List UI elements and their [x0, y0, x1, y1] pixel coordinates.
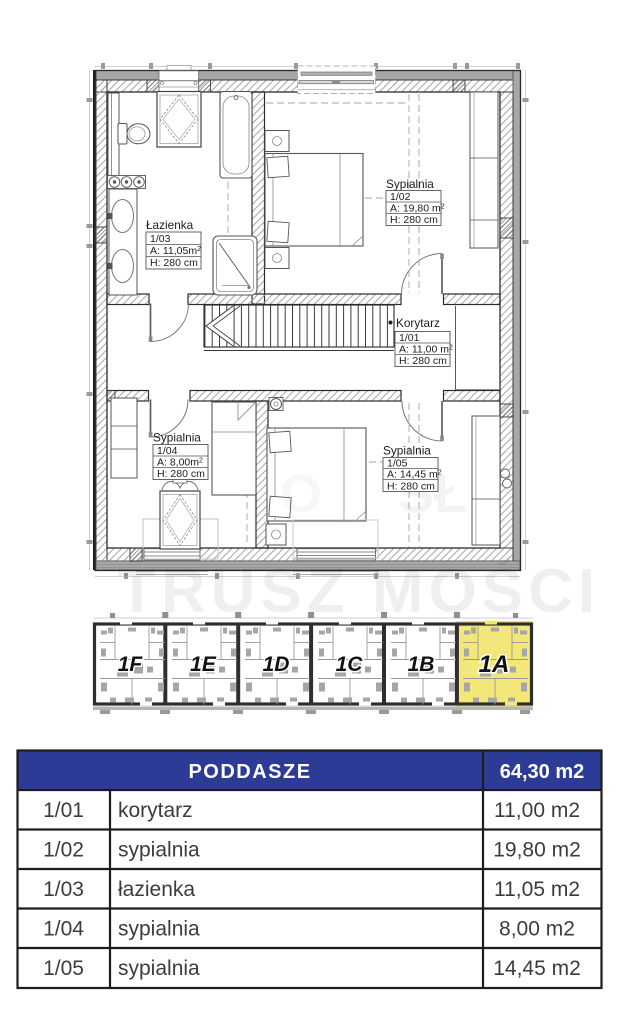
svg-text:sypialnia: sypialnia	[118, 839, 200, 862]
svg-text:Sypialnia: Sypialnia	[386, 177, 434, 191]
svg-text:H: 280 cm: H: 280 cm	[387, 481, 435, 493]
svg-text:Sypialnia: Sypialnia	[153, 431, 201, 445]
svg-text:1D: 1D	[263, 653, 290, 676]
svg-text:sypialnia: sypialnia	[118, 918, 200, 941]
svg-text:H: 280 cm: H: 280 cm	[157, 468, 205, 480]
svg-text:Łazienka: Łazienka	[146, 218, 194, 232]
svg-text:A: 14,45 m2: A: 14,45 m2	[387, 469, 442, 481]
svg-text:Korytarz: Korytarz	[396, 316, 440, 330]
svg-text:1C: 1C	[336, 653, 364, 676]
svg-text:1E: 1E	[190, 653, 217, 676]
svg-text:1/02: 1/02	[43, 839, 84, 862]
svg-text:1B: 1B	[408, 653, 435, 676]
svg-text:1F: 1F	[118, 653, 144, 676]
svg-text:14,45 m2: 14,45 m2	[493, 957, 581, 980]
svg-text:H: 280 cm: H: 280 cm	[150, 257, 198, 269]
svg-text:19,80 m2: 19,80 m2	[493, 839, 581, 862]
svg-text:O: O	[280, 464, 322, 524]
svg-text:Sypialnia: Sypialnia	[383, 444, 431, 458]
svg-text:64,30 m2: 64,30 m2	[500, 761, 585, 783]
svg-text:1/01: 1/01	[399, 332, 420, 344]
svg-text:11,00 m2: 11,00 m2	[494, 799, 580, 822]
svg-text:1A: 1A	[479, 651, 510, 678]
svg-text:korytarz: korytarz	[118, 799, 193, 822]
svg-text:A: 19,80 m2: A: 19,80 m2	[390, 203, 445, 215]
svg-text:1/04: 1/04	[157, 445, 178, 457]
svg-text:A: 11,00 m2: A: 11,00 m2	[399, 344, 453, 356]
svg-text:H: 280 cm: H: 280 cm	[390, 214, 438, 226]
svg-text:8,00 m2: 8,00 m2	[499, 918, 575, 941]
svg-text:1/03: 1/03	[43, 878, 84, 901]
svg-text:H: 280 cm: H: 280 cm	[399, 355, 447, 367]
svg-text:1/03: 1/03	[150, 233, 171, 245]
svg-text:1/04: 1/04	[43, 918, 84, 941]
svg-text:11,05 m2: 11,05 m2	[494, 878, 580, 901]
svg-text:łazienka: łazienka	[118, 878, 195, 901]
svg-text:TRUSZ MOŚCI: TRUSZ MOŚCI	[118, 557, 600, 626]
svg-text:A: 8,00m2: A: 8,00m2	[157, 457, 203, 469]
svg-text:1/02: 1/02	[390, 191, 411, 203]
svg-text:sypialnia: sypialnia	[118, 957, 200, 980]
svg-text:PODDASZE: PODDASZE	[188, 761, 311, 783]
svg-text:A: 11,05m2: A: 11,05m2	[150, 245, 201, 257]
svg-text:1/05: 1/05	[43, 957, 84, 980]
svg-text:1/01: 1/01	[43, 799, 84, 822]
